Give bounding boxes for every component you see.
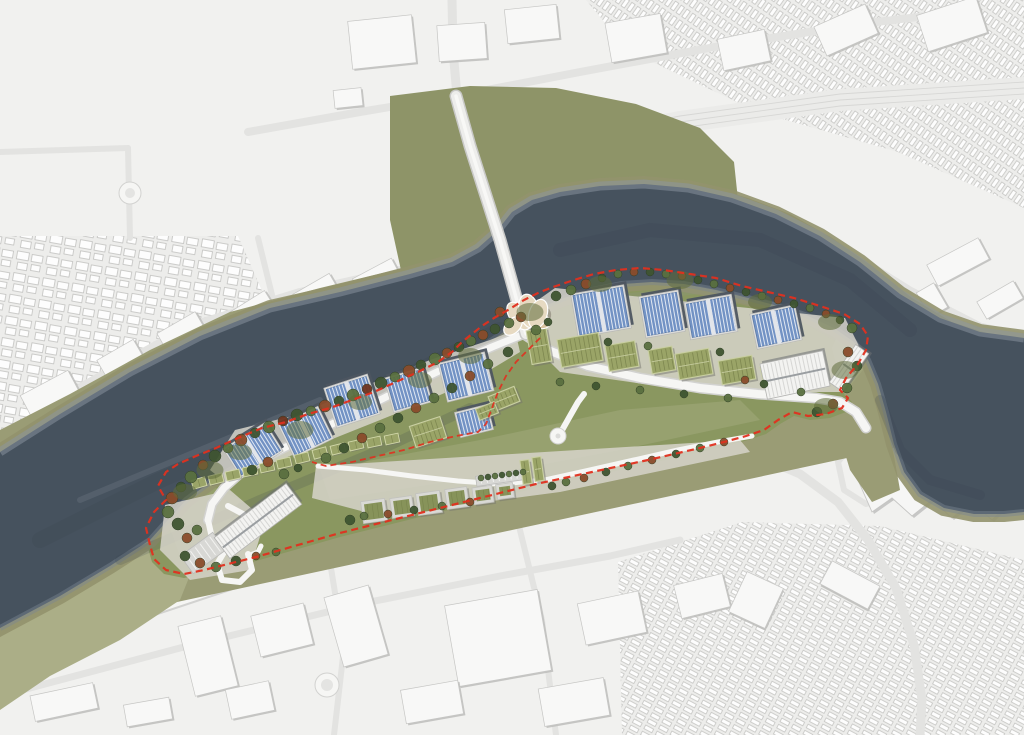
tree: [321, 453, 331, 463]
tree: [797, 388, 805, 396]
tree: [192, 525, 202, 535]
tree: [774, 296, 782, 304]
tree: [847, 323, 857, 333]
pv-apartment-building: [638, 286, 688, 338]
tree: [503, 347, 513, 357]
roundabout-island: [321, 679, 333, 691]
tree: [513, 470, 519, 476]
tree: [760, 380, 768, 388]
tree: [339, 443, 349, 453]
green-roof-building: [648, 346, 678, 377]
mini-roundabout-island: [556, 434, 561, 439]
tree: [209, 450, 221, 462]
masterplan-canvas: [0, 0, 1024, 735]
tree: [492, 473, 498, 479]
tree: [478, 330, 488, 340]
tree: [195, 558, 205, 568]
tree: [162, 506, 174, 518]
tree: [231, 556, 241, 566]
tree: [843, 347, 853, 357]
tree: [447, 383, 457, 393]
tree: [556, 378, 564, 386]
tree: [742, 288, 750, 296]
shrub-mass: [818, 314, 842, 330]
roundabout-island: [125, 188, 135, 198]
tree: [375, 377, 387, 389]
tree: [185, 471, 197, 483]
tree: [806, 304, 814, 312]
tree: [247, 465, 257, 475]
district-texture-bottomright-residential: [618, 522, 1024, 735]
tree: [483, 359, 493, 369]
tree: [429, 393, 439, 403]
shrub-mass: [173, 484, 197, 500]
tree: [506, 471, 512, 477]
context-building: [348, 15, 418, 71]
tree: [636, 386, 644, 394]
tree: [182, 533, 192, 543]
tree: [741, 376, 749, 384]
tree: [726, 284, 734, 292]
context-building: [437, 22, 489, 63]
tree: [172, 518, 184, 530]
tree: [478, 475, 484, 481]
tree: [724, 394, 732, 402]
tree: [694, 276, 702, 284]
tree: [710, 280, 718, 288]
tree: [345, 515, 355, 525]
tree: [566, 285, 576, 295]
shrub-mass: [832, 361, 859, 379]
tree: [520, 469, 526, 475]
shrub-mass: [588, 276, 612, 292]
context-road: [0, 148, 128, 152]
tree: [544, 318, 552, 326]
building-roof: [348, 15, 417, 69]
building-roof: [437, 22, 487, 61]
context-building: [333, 87, 365, 110]
tree: [384, 510, 392, 518]
tree: [790, 300, 798, 308]
courtyard-green-building: [496, 482, 517, 501]
building-roof: [333, 88, 363, 109]
context-building: [445, 589, 554, 688]
tree: [411, 403, 421, 413]
tree: [716, 348, 724, 356]
tree: [644, 342, 652, 350]
shrub-mass: [517, 303, 544, 321]
building-roof: [445, 589, 552, 686]
tree: [375, 423, 385, 433]
tree: [648, 456, 656, 464]
tree: [842, 383, 852, 393]
shrub-mass: [458, 348, 482, 364]
courtyard-green-building: [472, 485, 496, 507]
tree: [416, 360, 426, 370]
tree: [604, 338, 612, 346]
tree: [504, 318, 514, 328]
tree: [429, 353, 441, 365]
tree: [562, 478, 570, 486]
tree: [294, 464, 302, 472]
tree: [263, 457, 273, 467]
tree: [490, 324, 500, 334]
tree: [548, 482, 556, 490]
shrub-mass: [748, 294, 772, 310]
tree: [279, 469, 289, 479]
tree: [499, 472, 505, 478]
tree: [180, 551, 190, 561]
tree: [306, 406, 316, 416]
tree: [551, 291, 561, 301]
tree: [592, 382, 600, 390]
masterplan-svg: [0, 0, 1024, 735]
shrub-mass: [228, 444, 252, 460]
tree: [485, 474, 491, 480]
shrub-mass: [287, 421, 314, 439]
tree: [357, 433, 367, 443]
tree: [393, 413, 403, 423]
tree: [531, 325, 541, 335]
tree: [360, 512, 368, 520]
context-building: [504, 4, 561, 45]
building-roof: [504, 4, 559, 43]
tree: [680, 390, 688, 398]
tree: [465, 371, 475, 381]
pv-apartment-building: [684, 291, 741, 340]
shrub-mass: [197, 461, 224, 479]
tree: [410, 506, 418, 514]
